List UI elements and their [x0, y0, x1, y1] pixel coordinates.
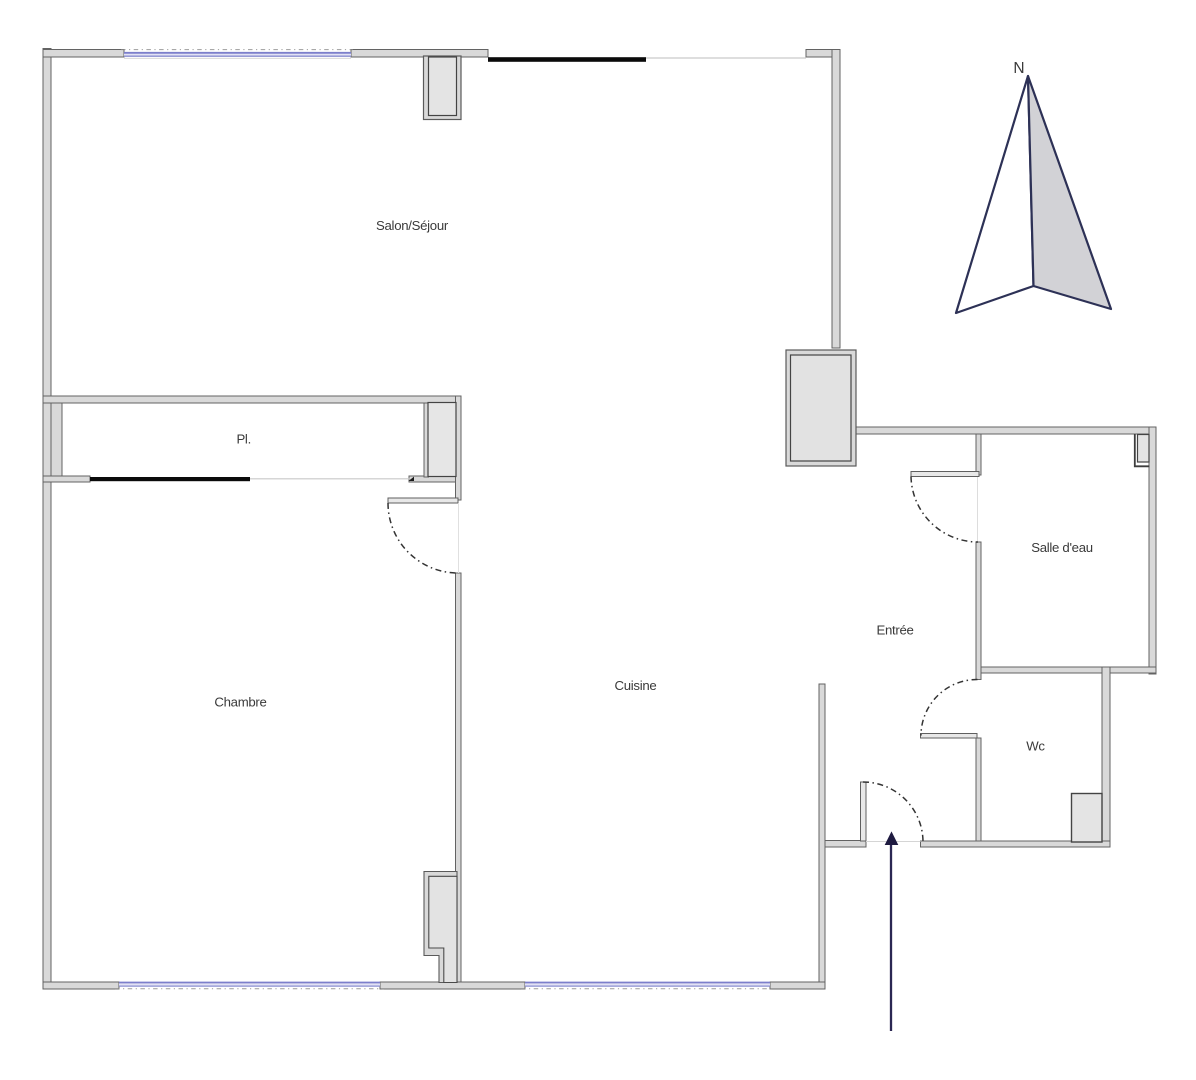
svg-text:Chambre: Chambre: [214, 695, 266, 710]
svg-text:Pl.: Pl.: [236, 432, 251, 447]
svg-text:Wc: Wc: [1026, 739, 1045, 754]
svg-text:Salle d'eau: Salle d'eau: [1031, 540, 1093, 555]
svg-text:Salon/Séjour: Salon/Séjour: [376, 218, 449, 233]
svg-text:Cuisine: Cuisine: [615, 678, 657, 693]
svg-text:Entrée: Entrée: [876, 623, 913, 638]
svg-text:N: N: [1013, 60, 1024, 77]
